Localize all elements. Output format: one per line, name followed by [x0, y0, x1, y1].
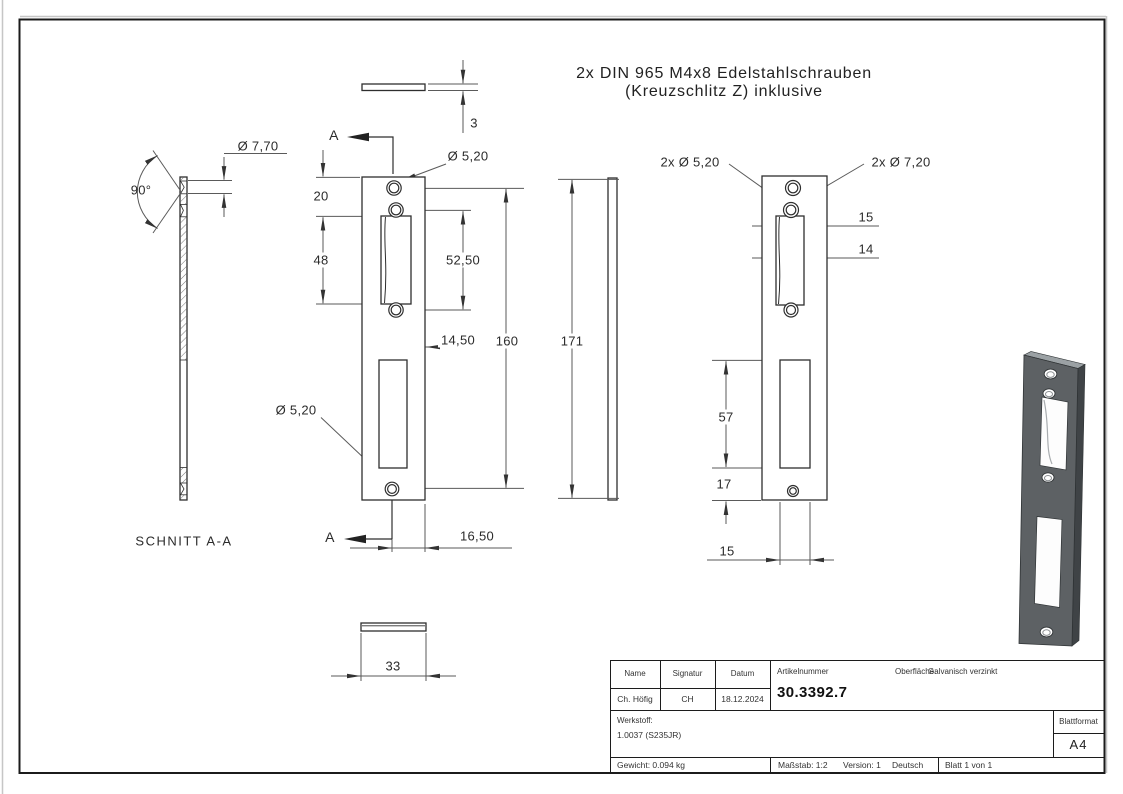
dim-15-top: 15 [858, 210, 873, 225]
tb-name: Ch. Höfig [610, 688, 660, 710]
dim-2x-7-20: 2x Ø 7,20 [871, 155, 930, 170]
title-block: Name Signatur Datum Ch. Höfig CH 18.12.2… [610, 660, 1104, 773]
tb-artikelnummer-label: Artikelnummer [777, 667, 897, 676]
dim-57: 57 [715, 410, 736, 425]
dim-171: 171 [558, 334, 587, 349]
tb-artikelnummer-value: 30.3392.7 [777, 684, 847, 701]
tb-datum: 18.12.2024 [715, 688, 770, 710]
dim-angle-90: 90° [131, 183, 152, 198]
dim-20: 20 [310, 189, 331, 204]
cut-marker-a-top: A [329, 127, 339, 143]
tb-oberflaeche-value: Galvanisch verzinkt [928, 667, 1048, 676]
dim-bottom-hole-dia: Ø 5,20 [276, 403, 317, 418]
tb-col-signatur: Signatur [660, 660, 715, 688]
tb-col-name: Name [610, 660, 660, 688]
tb-blatt: Blatt 1 von 1 [945, 757, 1045, 773]
tb-blattformat-label: Blattformat [1053, 710, 1104, 733]
dim-17: 17 [713, 477, 734, 492]
dim-33: 33 [385, 659, 400, 674]
dim-14-50: 14,50 [438, 333, 478, 348]
dim-15-bottom: 15 [719, 544, 734, 559]
tb-sprache: Deutsch [892, 757, 936, 773]
section-view [137, 151, 287, 501]
tb-version: Version: 1 [843, 757, 889, 773]
note-line2: (Kreuzschlitz Z) inklusive [625, 83, 823, 101]
render-3d [1019, 352, 1085, 647]
cut-marker-a-bottom: A [325, 529, 335, 545]
dim-countersink-dia: Ø 7,70 [238, 139, 279, 154]
tb-signatur: CH [660, 688, 715, 710]
tb-gewicht: Gewicht: 0.094 kg [617, 757, 767, 773]
dim-14: 14 [858, 242, 873, 257]
dim-16-50: 16,50 [460, 529, 494, 544]
dim-52-50: 52,50 [443, 253, 483, 268]
section-view-title: SCHNITT A-A [135, 534, 232, 549]
dim-160: 160 [493, 334, 522, 349]
tb-blattformat-value: A4 [1053, 733, 1104, 757]
tb-col-datum: Datum [715, 660, 770, 688]
tb-werkstoff-value: 1.0037 (S235JR) [617, 730, 767, 740]
dim-48: 48 [310, 253, 331, 268]
right-view [707, 164, 879, 565]
drawing-sheet: 2x DIN 965 M4x8 Edelstahlschrauben (Kreu… [0, 0, 1123, 794]
dim-2x-5-20: 2x Ø 5,20 [660, 155, 719, 170]
tb-werkstoff-label: Werkstoff: [617, 716, 737, 725]
top-view [362, 60, 478, 133]
note-line1: 2x DIN 965 M4x8 Edelstahlschrauben [576, 65, 872, 83]
dim-top-hole-dia: Ø 5,20 [448, 149, 489, 164]
dim-thickness-3: 3 [470, 116, 478, 131]
tb-massstab: Maßstab: 1:2 [778, 757, 840, 773]
